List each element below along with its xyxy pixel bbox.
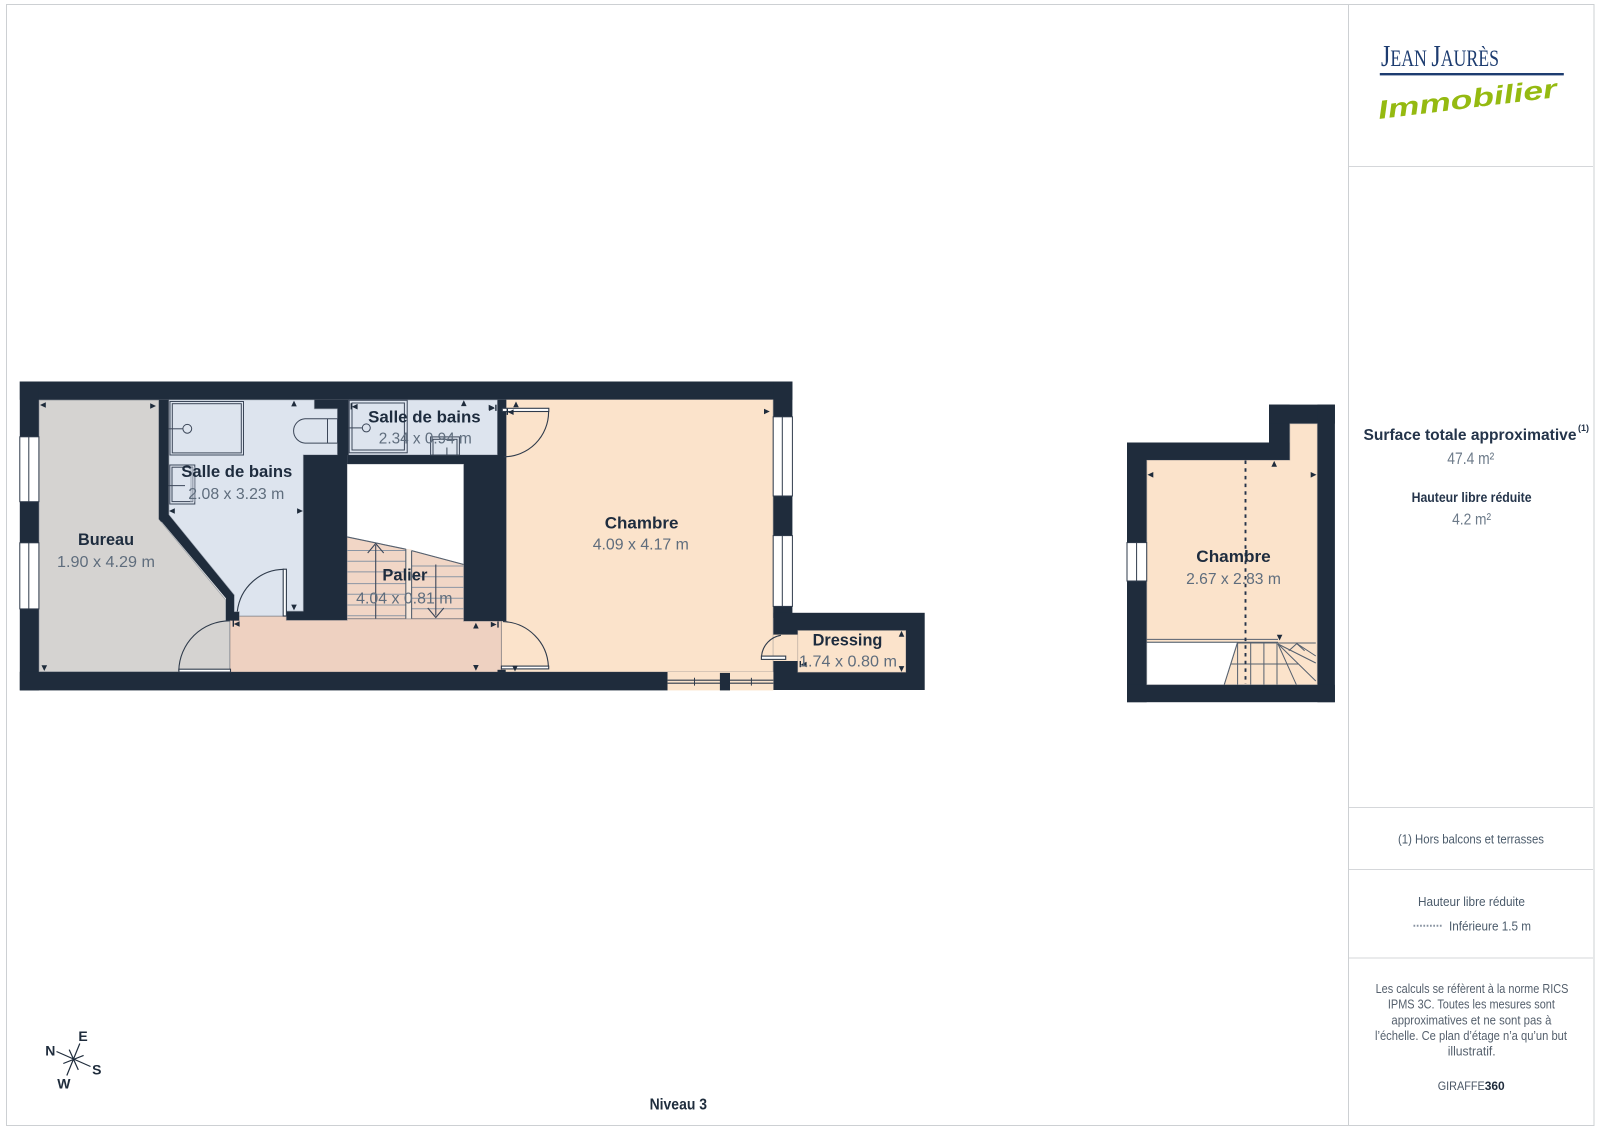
svg-text:l’échelle. Ce plan d’étage n’a: l’échelle. Ce plan d’étage n’a qu’un but (1375, 1028, 1567, 1043)
svg-text:Salle de bains: Salle de bains (181, 462, 292, 481)
svg-text:1.74 x 0.80 m: 1.74 x 0.80 m (799, 654, 897, 671)
svg-text:IPMS 3C. Toutes les mesures so: IPMS 3C. Toutes les mesures sont (1388, 997, 1555, 1012)
svg-text:(1) Hors balcons et terrasses: (1) Hors balcons et terrasses (1398, 832, 1544, 847)
svg-text:Bureau: Bureau (78, 530, 134, 549)
svg-text:1.90 x 4.29 m: 1.90 x 4.29 m (57, 554, 155, 571)
svg-text:approximatives et ne sont pas: approximatives et ne sont pas à (1391, 1012, 1552, 1027)
svg-text:S: S (92, 1061, 101, 1077)
svg-text:4.2 m²: 4.2 m² (1452, 512, 1492, 529)
svg-text:W: W (57, 1075, 71, 1091)
svg-text:Chambre: Chambre (605, 514, 679, 533)
svg-text:Palier: Palier (382, 566, 427, 585)
svg-text:4.04 x 0.81 m: 4.04 x 0.81 m (356, 591, 452, 608)
svg-text:Salle de bains: Salle de bains (368, 408, 481, 427)
svg-text:N: N (45, 1042, 55, 1058)
svg-text:2.67 x 2.83 m: 2.67 x 2.83 m (1186, 571, 1281, 588)
svg-text:Hauteur libre réduite: Hauteur libre réduite (1418, 894, 1525, 909)
svg-text:E: E (78, 1028, 87, 1044)
svg-text:GIRAFFE360: GIRAFFE360 (1438, 1079, 1505, 1093)
svg-text:4.09 x 4.17 m: 4.09 x 4.17 m (593, 537, 689, 554)
svg-text:(1): (1) (1578, 423, 1589, 433)
svg-text:Niveau 3: Niveau 3 (650, 1096, 707, 1113)
svg-text:Inférieure 1.5 m: Inférieure 1.5 m (1449, 919, 1531, 934)
svg-text:47.4 m²: 47.4 m² (1447, 449, 1494, 468)
svg-text:Surface totale approximative: Surface totale approximative (1364, 427, 1577, 444)
svg-text:illustratif.: illustratif. (1448, 1044, 1496, 1059)
svg-text:Dressing: Dressing (813, 631, 883, 649)
svg-text:2.08 x 3.23 m: 2.08 x 3.23 m (188, 486, 284, 503)
svg-text:Hauteur libre réduite: Hauteur libre réduite (1412, 489, 1532, 505)
svg-text:Chambre: Chambre (1196, 547, 1270, 566)
svg-text:Les calculs se réfèrent à la n: Les calculs se réfèrent à la norme RICS (1376, 981, 1569, 996)
svg-text:2.34 x 0.94 m: 2.34 x 0.94 m (379, 431, 472, 448)
